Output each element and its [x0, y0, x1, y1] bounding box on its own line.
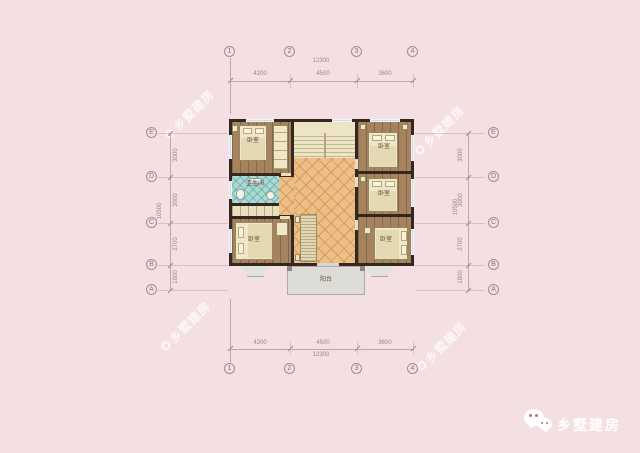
window [246, 119, 274, 122]
axis-extension-line [415, 223, 485, 224]
axis-circle-col-3: 3 [351, 363, 362, 374]
axis-extension-line [290, 342, 291, 354]
room-label: 卧室 [364, 144, 404, 151]
dim-segment: 2700 [172, 229, 180, 259]
axis-extension-line [230, 299, 231, 362]
hall-closet [232, 206, 279, 216]
axis-circle-row-e: E [488, 127, 499, 138]
nightstand [232, 125, 238, 132]
window [370, 119, 400, 122]
dim-segment: 3000 [172, 185, 180, 215]
wardrobe [273, 125, 288, 170]
bay-window [366, 266, 393, 277]
bedroom-bottom-right: 卧室 [358, 217, 411, 263]
stool [295, 254, 300, 261]
dim-total-width-bottom: 12300 [299, 352, 343, 359]
room-label: 卫生间 [235, 181, 275, 188]
altar-table [300, 214, 317, 262]
axis-circle-col-3: 3 [351, 46, 362, 57]
floor-plan: 卧室 卧室 卫生间 [229, 119, 414, 266]
door-opening [355, 159, 358, 169]
watermark-text: 乡墅建房 [165, 297, 214, 346]
axis-circle-col-1: 1 [224, 363, 235, 374]
stair-divider [324, 133, 326, 158]
dim-segment: 4200 [245, 71, 275, 78]
dimension-line [230, 81, 414, 82]
axis-circle-col-4: 4 [407, 363, 418, 374]
window [411, 229, 414, 255]
room-label: 卧室 [364, 191, 404, 198]
axis-circle-col-1: 1 [224, 46, 235, 57]
dim-total-width-top: 12300 [299, 58, 343, 65]
window [229, 229, 232, 253]
window [229, 135, 232, 159]
sink-icon [266, 191, 275, 200]
axis-circle-row-d: D [146, 171, 157, 182]
axis-extension-line [415, 265, 485, 266]
nightstand [360, 124, 366, 130]
axis-circle-col-2: 2 [284, 363, 295, 374]
room-label: 卧室 [366, 237, 406, 244]
axis-circle-row-e: E [146, 127, 157, 138]
door-opening [355, 177, 358, 187]
stair-flight [326, 133, 355, 158]
balcony-column [360, 266, 365, 271]
brand-bubble-icon [413, 143, 426, 156]
dim-segment: 1800 [457, 262, 465, 292]
axis-circle-row-a: A [488, 284, 499, 295]
dim-total-height-left: 10500 [156, 196, 164, 226]
axis-extension-line [357, 74, 358, 88]
room-label: 卧室 [234, 237, 274, 244]
dim-segment: 2700 [457, 229, 465, 259]
dim-segment: 1800 [172, 262, 180, 292]
door-opening [355, 220, 358, 230]
dimension-line [230, 349, 414, 350]
room-label: 阳台 [320, 277, 332, 284]
axis-extension-line [357, 342, 358, 354]
watermark-text: 乡墅建房 [421, 317, 470, 366]
watermark: 乡墅建房 [413, 308, 478, 373]
axis-extension-line [415, 177, 485, 178]
bedroom-top-left: 卧室 [232, 122, 291, 173]
bathroom: 卫生间 [232, 176, 279, 203]
window [229, 181, 232, 199]
door-opening [281, 173, 291, 176]
floor-plan-page: 乡墅建房 乡墅建房 乡墅建房 乡墅建房 乡墅建房 1 2 3 4 12300 4… [0, 0, 640, 453]
nightstand [364, 227, 371, 234]
watermark-text: 乡墅建房 [169, 85, 218, 134]
window [411, 135, 414, 161]
dim-segment: 4500 [308, 340, 338, 347]
wechat-bubbles-icon [524, 409, 554, 437]
window [332, 119, 352, 122]
axis-circle-row-d: D [488, 171, 499, 182]
brand-name: 乡墅建房 [557, 415, 621, 435]
bedroom-top-right: 卧室 [358, 122, 411, 171]
hall [294, 158, 355, 263]
dim-segment: 3000 [172, 140, 180, 170]
dim-segment: 3600 [370, 71, 400, 78]
dim-segment: 4500 [308, 71, 338, 78]
dim-segment: 3600 [370, 340, 400, 347]
axis-circle-row-c: C [488, 217, 499, 228]
balcony-column [287, 266, 292, 271]
axis-extension-line [415, 133, 485, 134]
room-label: 卧室 [233, 138, 273, 145]
nightstand [276, 222, 288, 236]
stair-flight [294, 133, 324, 158]
axis-circle-row-b: B [488, 259, 499, 270]
dim-segment: 4200 [245, 340, 275, 347]
nightstand [360, 176, 366, 182]
axis-circle-row-b: B [146, 259, 157, 270]
door-opening [280, 216, 290, 219]
brand-bubble-icon [159, 339, 172, 352]
axis-extension-line [290, 74, 291, 88]
bedroom-bottom-left: 卧室 [232, 219, 291, 263]
axis-extension-line [413, 342, 414, 354]
hall-corridor [279, 177, 294, 215]
nightstand [402, 124, 408, 130]
dim-segment: 3000 [457, 140, 465, 170]
axis-circle-col-2: 2 [284, 46, 295, 57]
staircase [294, 122, 355, 158]
dim-total-height-right: 10500 [452, 192, 460, 222]
window [411, 179, 414, 207]
axis-extension-line [230, 58, 231, 114]
bedroom-mid-right: 卧室 [358, 174, 411, 214]
balcony: 阳台 [287, 266, 365, 295]
watermark: 乡墅建房 [411, 92, 476, 157]
axis-extension-line [413, 74, 414, 88]
bay-window [242, 266, 269, 277]
toilet-icon [236, 189, 245, 200]
axis-extension-line [415, 290, 485, 291]
axis-circle-col-4: 4 [407, 46, 418, 57]
axis-circle-row-a: A [146, 284, 157, 295]
watermark: 乡墅建房 [157, 288, 222, 353]
stool [295, 216, 300, 223]
